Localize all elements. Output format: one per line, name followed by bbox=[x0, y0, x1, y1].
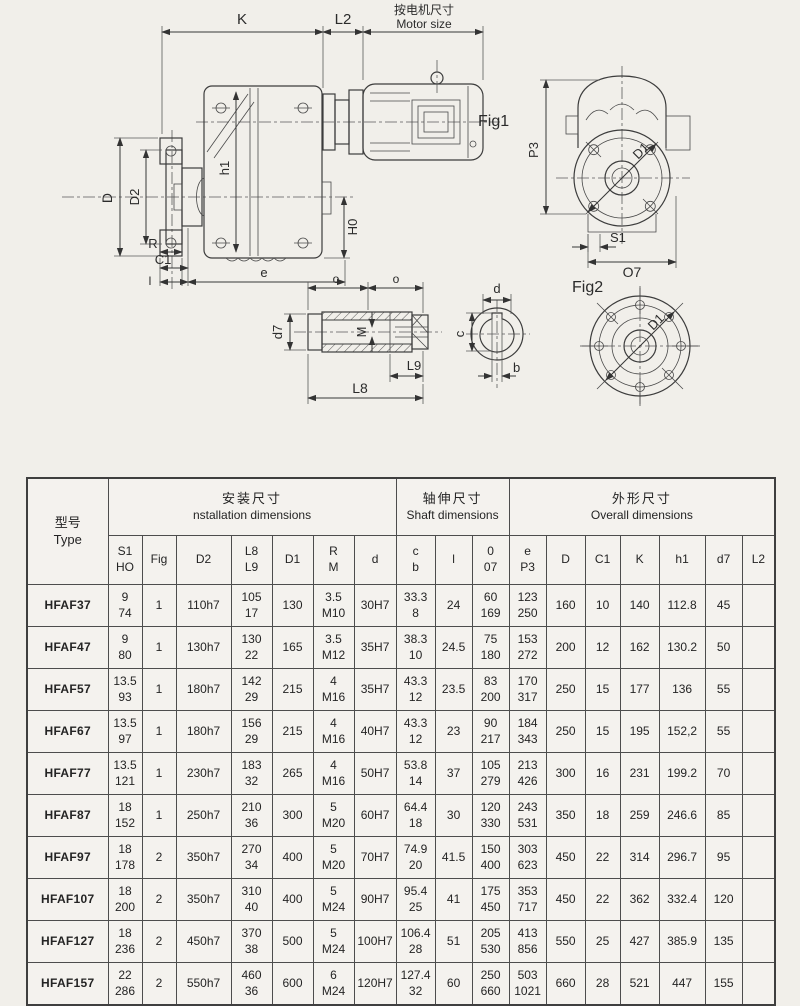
value-cell: 43.312 bbox=[396, 711, 435, 753]
value-cell bbox=[742, 627, 775, 669]
value-cell: 50 bbox=[705, 627, 742, 669]
row-type: HFAF87 bbox=[27, 795, 108, 837]
technical-drawing: K L2 按电机尺寸 Motor size D D2 h1 H0 bbox=[0, 0, 800, 466]
value-cell: 250 bbox=[546, 711, 585, 753]
fig2-label: Fig2 bbox=[572, 279, 603, 296]
row-type: HFAF97 bbox=[27, 837, 108, 879]
value-cell: 18200 bbox=[108, 879, 142, 921]
dim-label-o-left: o bbox=[333, 272, 340, 286]
value-cell: 10 bbox=[585, 585, 620, 627]
value-cell: 13.597 bbox=[108, 711, 142, 753]
value-cell: 18 bbox=[585, 795, 620, 837]
motor-size-label-zh: 按电机尺寸 bbox=[394, 3, 454, 17]
value-cell: 25 bbox=[585, 921, 620, 963]
row-type: HFAF57 bbox=[27, 669, 108, 711]
col-header-k: K bbox=[620, 536, 659, 585]
table-row: HFAF5713.5931180h7142292154M1635H743.312… bbox=[27, 669, 775, 711]
dim-label-c1: C1 bbox=[155, 252, 172, 267]
value-cell: 5M24 bbox=[313, 921, 354, 963]
value-cell: 400 bbox=[272, 879, 313, 921]
value-cell: 175450 bbox=[472, 879, 509, 921]
value-cell: 265 bbox=[272, 753, 313, 795]
value-cell: 22286 bbox=[108, 963, 142, 1006]
value-cell: 31040 bbox=[231, 879, 272, 921]
value-cell: 35H7 bbox=[354, 669, 396, 711]
col-header-l8-l9: L8L9 bbox=[231, 536, 272, 585]
value-cell: 105279 bbox=[472, 753, 509, 795]
dim-label-o7: O7 bbox=[623, 264, 642, 280]
table-row: HFAF479801130h7130221653.5M1235H738.3102… bbox=[27, 627, 775, 669]
dim-label-d: D bbox=[99, 193, 115, 203]
value-cell: 350h7 bbox=[176, 837, 231, 879]
value-cell: 30 bbox=[435, 795, 472, 837]
value-cell: 2 bbox=[142, 879, 176, 921]
value-cell: 303623 bbox=[509, 837, 546, 879]
value-cell: 64.418 bbox=[396, 795, 435, 837]
value-cell: 231 bbox=[620, 753, 659, 795]
value-cell: 243531 bbox=[509, 795, 546, 837]
value-cell: 6M24 bbox=[313, 963, 354, 1006]
row-type: HFAF37 bbox=[27, 585, 108, 627]
value-cell: 1 bbox=[142, 795, 176, 837]
value-cell: 180h7 bbox=[176, 711, 231, 753]
value-cell: 13.593 bbox=[108, 669, 142, 711]
value-cell: 250h7 bbox=[176, 795, 231, 837]
value-cell: 18332 bbox=[231, 753, 272, 795]
value-cell: 13.5121 bbox=[108, 753, 142, 795]
dim-label-sec-b: b bbox=[513, 360, 520, 375]
value-cell: 980 bbox=[108, 627, 142, 669]
value-cell: 385.9 bbox=[659, 921, 705, 963]
value-cell: 974 bbox=[108, 585, 142, 627]
value-cell: 127.432 bbox=[396, 963, 435, 1006]
value-cell: 259 bbox=[620, 795, 659, 837]
value-cell: 15629 bbox=[231, 711, 272, 753]
value-cell: 95 bbox=[705, 837, 742, 879]
dim-label-l9: L9 bbox=[407, 358, 421, 373]
dim-label-h0: H0 bbox=[345, 219, 360, 236]
col-header-e-p3: eP3 bbox=[509, 536, 546, 585]
value-cell: 300 bbox=[272, 795, 313, 837]
value-cell: 427 bbox=[620, 921, 659, 963]
value-cell bbox=[742, 963, 775, 1006]
dim-label-s1: S1 bbox=[610, 230, 626, 245]
value-cell: 3.5M10 bbox=[313, 585, 354, 627]
col-header-0-07: 007 bbox=[472, 536, 509, 585]
col-header-r-m: RM bbox=[313, 536, 354, 585]
header-installation-dimensions: 安装尺寸 nstallation dimensions bbox=[108, 478, 396, 536]
value-cell: 60169 bbox=[472, 585, 509, 627]
value-cell: 130 bbox=[272, 585, 313, 627]
value-cell: 70 bbox=[705, 753, 742, 795]
value-cell: 162 bbox=[620, 627, 659, 669]
side-view-drawing: K L2 按电机尺寸 Motor size D D2 h1 H0 bbox=[62, 3, 500, 290]
col-header-s1-ho: S1HO bbox=[108, 536, 142, 585]
value-cell: 550h7 bbox=[176, 963, 231, 1006]
value-cell: 12 bbox=[585, 627, 620, 669]
value-cell: 10517 bbox=[231, 585, 272, 627]
value-cell: 5M24 bbox=[313, 879, 354, 921]
value-cell: 74.920 bbox=[396, 837, 435, 879]
value-cell: 1 bbox=[142, 711, 176, 753]
fig2-drawing: Fig2 D1 bbox=[572, 279, 700, 406]
value-cell: 41.5 bbox=[435, 837, 472, 879]
value-cell: 21036 bbox=[231, 795, 272, 837]
header-shaft-dimensions: 轴伸尺寸 Shaft dimensions bbox=[396, 478, 509, 536]
value-cell: 660 bbox=[546, 963, 585, 1006]
value-cell: 300 bbox=[546, 753, 585, 795]
row-type: HFAF67 bbox=[27, 711, 108, 753]
value-cell: 400 bbox=[272, 837, 313, 879]
value-cell: 120H7 bbox=[354, 963, 396, 1006]
value-cell: 100H7 bbox=[354, 921, 396, 963]
value-cell: 90H7 bbox=[354, 879, 396, 921]
value-cell: 150400 bbox=[472, 837, 509, 879]
value-cell: 4M16 bbox=[313, 753, 354, 795]
dim-label-d1-fig2: D1 bbox=[645, 311, 667, 333]
value-cell: 22 bbox=[585, 879, 620, 921]
value-cell: 37 bbox=[435, 753, 472, 795]
value-cell: 140 bbox=[620, 585, 659, 627]
col-header-d7: d7 bbox=[705, 536, 742, 585]
value-cell: 195 bbox=[620, 711, 659, 753]
value-cell: 177 bbox=[620, 669, 659, 711]
value-cell: 160 bbox=[546, 585, 585, 627]
value-cell: 1 bbox=[142, 585, 176, 627]
value-cell: 45 bbox=[705, 585, 742, 627]
value-cell: 362 bbox=[620, 879, 659, 921]
value-cell: 353717 bbox=[509, 879, 546, 921]
value-cell: 215 bbox=[272, 669, 313, 711]
value-cell: 314 bbox=[620, 837, 659, 879]
value-cell: 75180 bbox=[472, 627, 509, 669]
value-cell: 130.2 bbox=[659, 627, 705, 669]
row-type: HFAF157 bbox=[27, 963, 108, 1006]
row-type: HFAF77 bbox=[27, 753, 108, 795]
value-cell: 28 bbox=[585, 963, 620, 1006]
value-cell: 55 bbox=[705, 669, 742, 711]
value-cell: 450 bbox=[546, 879, 585, 921]
value-cell: 2 bbox=[142, 837, 176, 879]
value-cell bbox=[742, 795, 775, 837]
dimension-table: 型号 Type 安装尺寸 nstallation dimensions 轴伸尺寸… bbox=[26, 477, 776, 1006]
value-cell: 5M20 bbox=[313, 795, 354, 837]
col-header-l: l bbox=[435, 536, 472, 585]
header-overall-dimensions: 外形尺寸 Overall dimensions bbox=[509, 478, 775, 536]
value-cell bbox=[742, 711, 775, 753]
value-cell bbox=[742, 669, 775, 711]
value-cell: 95.425 bbox=[396, 879, 435, 921]
value-cell: 215 bbox=[272, 711, 313, 753]
value-cell: 1 bbox=[142, 753, 176, 795]
value-cell: 450h7 bbox=[176, 921, 231, 963]
fig1-drawing: Fig1 D1 P3 S1 O7 bbox=[478, 66, 690, 280]
dim-label-m: M bbox=[354, 327, 369, 338]
value-cell: 2 bbox=[142, 963, 176, 1006]
value-cell: 135 bbox=[705, 921, 742, 963]
value-cell bbox=[742, 837, 775, 879]
dim-label-k: K bbox=[237, 11, 247, 28]
value-cell: 38.310 bbox=[396, 627, 435, 669]
value-cell: 85 bbox=[705, 795, 742, 837]
value-cell: 27034 bbox=[231, 837, 272, 879]
table-row: HFAF127182362450h7370385005M24100H7106.4… bbox=[27, 921, 775, 963]
value-cell: 5M20 bbox=[313, 837, 354, 879]
value-cell bbox=[742, 879, 775, 921]
value-cell: 250 bbox=[546, 669, 585, 711]
shaft-section-drawing: d c b bbox=[452, 281, 530, 388]
value-cell: 165 bbox=[272, 627, 313, 669]
value-cell: 35H7 bbox=[354, 627, 396, 669]
dim-label-e: e bbox=[260, 265, 267, 280]
table-row: HFAF87181521250h7210363005M2060H764.4183… bbox=[27, 795, 775, 837]
dim-label-p3: P3 bbox=[526, 142, 541, 158]
col-header-d1: D1 bbox=[272, 536, 313, 585]
col-header-c-b: cb bbox=[396, 536, 435, 585]
value-cell: 18152 bbox=[108, 795, 142, 837]
value-cell: 4M16 bbox=[313, 669, 354, 711]
value-cell: 30H7 bbox=[354, 585, 396, 627]
shaft-drawing: M d7 o o L9 L8 bbox=[270, 272, 442, 404]
dim-label-d1: D1 bbox=[630, 140, 652, 162]
value-cell: 43.312 bbox=[396, 669, 435, 711]
row-type: HFAF47 bbox=[27, 627, 108, 669]
value-cell: 50H7 bbox=[354, 753, 396, 795]
value-cell: 106.428 bbox=[396, 921, 435, 963]
value-cell: 90217 bbox=[472, 711, 509, 753]
row-type: HFAF127 bbox=[27, 921, 108, 963]
value-cell: 180h7 bbox=[176, 669, 231, 711]
value-cell: 5031021 bbox=[509, 963, 546, 1006]
dim-label-l-bottom: l bbox=[149, 274, 152, 288]
value-cell: 24.5 bbox=[435, 627, 472, 669]
value-cell: 37038 bbox=[231, 921, 272, 963]
table-row: HFAF97181782350h7270344005M2070H774.9204… bbox=[27, 837, 775, 879]
value-cell: 350h7 bbox=[176, 879, 231, 921]
value-cell: 60H7 bbox=[354, 795, 396, 837]
motor bbox=[363, 60, 483, 160]
value-cell: 53.814 bbox=[396, 753, 435, 795]
value-cell: 1 bbox=[142, 627, 176, 669]
table-row: HFAF6713.5971180h7156292154M1640H743.312… bbox=[27, 711, 775, 753]
col-header-d: d bbox=[354, 536, 396, 585]
dim-label-r: R bbox=[148, 236, 157, 251]
value-cell: 447 bbox=[659, 963, 705, 1006]
dim-label-d2: D2 bbox=[127, 189, 142, 206]
value-cell: 1 bbox=[142, 669, 176, 711]
col-header-d2: D2 bbox=[176, 536, 231, 585]
value-cell: 170317 bbox=[509, 669, 546, 711]
value-cell: 600 bbox=[272, 963, 313, 1006]
value-cell: 500 bbox=[272, 921, 313, 963]
table-row: HFAF107182002350h7310404005M2490H795.425… bbox=[27, 879, 775, 921]
value-cell: 60 bbox=[435, 963, 472, 1006]
table-row: HFAF379741110h7105171303.5M1030H733.3824… bbox=[27, 585, 775, 627]
value-cell: 153272 bbox=[509, 627, 546, 669]
value-cell: 13022 bbox=[231, 627, 272, 669]
value-cell: 250660 bbox=[472, 963, 509, 1006]
header-type-zh: 型号 bbox=[28, 515, 108, 532]
col-header-fig: Fig bbox=[142, 536, 176, 585]
dim-label-sec-d: d bbox=[493, 281, 500, 296]
value-cell: 200 bbox=[546, 627, 585, 669]
value-cell: 110h7 bbox=[176, 585, 231, 627]
value-cell: 413856 bbox=[509, 921, 546, 963]
header-type: 型号 Type bbox=[27, 478, 108, 585]
value-cell: 184343 bbox=[509, 711, 546, 753]
value-cell: 15 bbox=[585, 711, 620, 753]
col-header-c1: C1 bbox=[585, 536, 620, 585]
value-cell: 152,2 bbox=[659, 711, 705, 753]
value-cell: 23.5 bbox=[435, 669, 472, 711]
value-cell: 24 bbox=[435, 585, 472, 627]
value-cell: 3.5M12 bbox=[313, 627, 354, 669]
row-type: HFAF107 bbox=[27, 879, 108, 921]
value-cell: 155 bbox=[705, 963, 742, 1006]
value-cell: 41 bbox=[435, 879, 472, 921]
value-cell: 33.38 bbox=[396, 585, 435, 627]
value-cell: 2 bbox=[142, 921, 176, 963]
dim-label-h1: h1 bbox=[217, 161, 232, 175]
fig1-label: Fig1 bbox=[478, 113, 509, 130]
value-cell: 123250 bbox=[509, 585, 546, 627]
value-cell bbox=[742, 921, 775, 963]
dim-label-l8: L8 bbox=[352, 380, 368, 396]
dim-label-d7: d7 bbox=[270, 325, 285, 339]
table-row: HFAF157222862550h7460366006M24120H7127.4… bbox=[27, 963, 775, 1006]
motor-size-label-en: Motor size bbox=[396, 17, 452, 31]
value-cell: 205530 bbox=[472, 921, 509, 963]
value-cell: 199.2 bbox=[659, 753, 705, 795]
value-cell bbox=[742, 585, 775, 627]
value-cell: 70H7 bbox=[354, 837, 396, 879]
value-cell: 15 bbox=[585, 669, 620, 711]
value-cell: 46036 bbox=[231, 963, 272, 1006]
value-cell: 120330 bbox=[472, 795, 509, 837]
value-cell: 136 bbox=[659, 669, 705, 711]
value-cell: 22 bbox=[585, 837, 620, 879]
value-cell: 16 bbox=[585, 753, 620, 795]
value-cell: 55 bbox=[705, 711, 742, 753]
value-cell: 40H7 bbox=[354, 711, 396, 753]
height-dimensions: h1 H0 bbox=[217, 92, 360, 258]
col-header-d: D bbox=[546, 536, 585, 585]
value-cell: 18236 bbox=[108, 921, 142, 963]
value-cell: 112.8 bbox=[659, 585, 705, 627]
dim-label-sec-c: c bbox=[452, 330, 467, 337]
value-cell bbox=[742, 753, 775, 795]
value-cell: 350 bbox=[546, 795, 585, 837]
value-cell: 83200 bbox=[472, 669, 509, 711]
dim-label-o-right: o bbox=[393, 272, 400, 286]
value-cell: 296.7 bbox=[659, 837, 705, 879]
value-cell: 550 bbox=[546, 921, 585, 963]
value-cell: 120 bbox=[705, 879, 742, 921]
dim-label-l2: L2 bbox=[335, 11, 352, 28]
value-cell: 230h7 bbox=[176, 753, 231, 795]
value-cell: 130h7 bbox=[176, 627, 231, 669]
col-header-h1: h1 bbox=[659, 536, 705, 585]
value-cell: 450 bbox=[546, 837, 585, 879]
value-cell: 23 bbox=[435, 711, 472, 753]
value-cell: 18178 bbox=[108, 837, 142, 879]
col-header-l2: L2 bbox=[742, 536, 775, 585]
value-cell: 332.4 bbox=[659, 879, 705, 921]
value-cell: 246.6 bbox=[659, 795, 705, 837]
header-type-en: Type bbox=[28, 532, 108, 549]
table-row: HFAF7713.51211230h7183322654M1650H753.81… bbox=[27, 753, 775, 795]
value-cell: 521 bbox=[620, 963, 659, 1006]
value-cell: 14229 bbox=[231, 669, 272, 711]
value-cell: 51 bbox=[435, 921, 472, 963]
value-cell: 213426 bbox=[509, 753, 546, 795]
value-cell: 4M16 bbox=[313, 711, 354, 753]
